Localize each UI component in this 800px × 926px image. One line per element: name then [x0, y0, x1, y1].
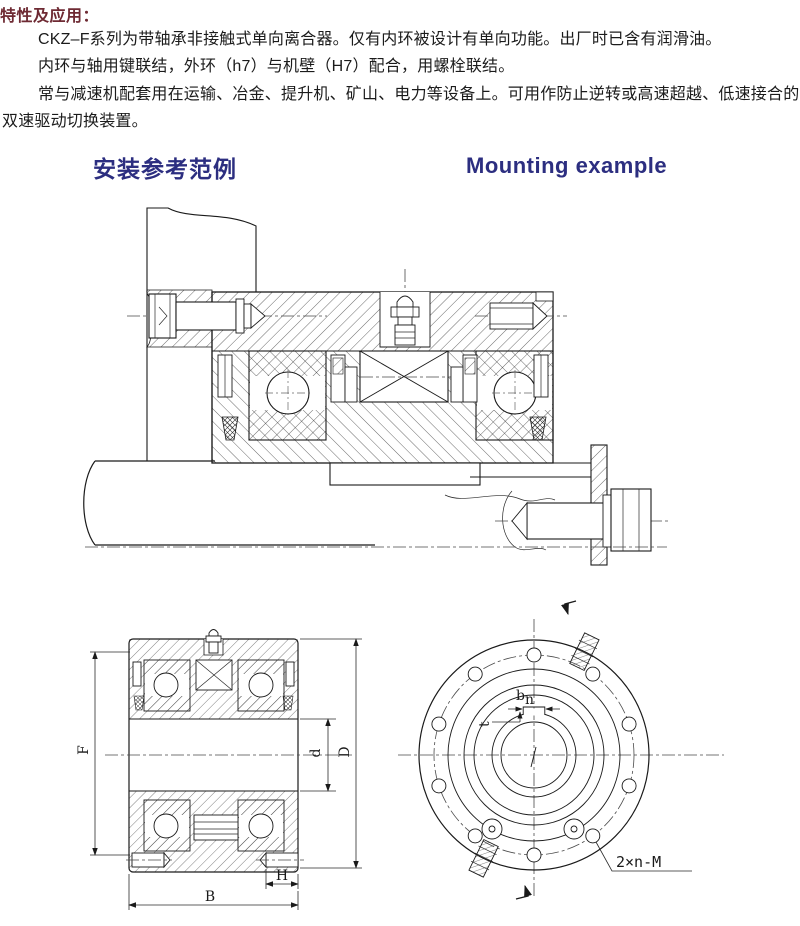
bolt-spec-label: 2×n-M: [616, 853, 661, 871]
mounting-example-drawing: [75, 195, 675, 575]
grease-fitting: [380, 269, 430, 347]
section-grease-fitting: [204, 630, 223, 656]
intro-line-2: 内环与轴用键联结，外环（h7）与机壁（H7）配合，用螺栓联结。: [0, 53, 800, 80]
shaft-key: [330, 463, 480, 485]
section-sleeve-bottom: [194, 815, 238, 840]
mounting-example-svg: [75, 195, 675, 575]
intro-block: 特性及应用： CKZ–F系列为带轴承非接触式单向离合器。仅有内环被设计有单向功能…: [0, 2, 800, 136]
radial-plug-bottom: [467, 839, 500, 878]
radial-plug-top: [568, 632, 601, 671]
section-mark-top: [565, 601, 576, 614]
section-bearing-bottom-right: [238, 800, 284, 851]
keyway-depth-label: t: [477, 721, 493, 727]
shaft: [84, 461, 555, 545]
section-bearing-top-right: [238, 660, 284, 711]
hex-bolt: [495, 489, 671, 551]
keyway-width-label: b: [516, 688, 525, 704]
front-view-drawing: b n t 2×n-M: [340, 585, 800, 926]
cross-section-svg: F d D H B: [60, 600, 380, 926]
keyway-width-dim: b n: [508, 688, 560, 709]
dim-label-F: F: [76, 745, 92, 755]
intro-line-1: CKZ–F系列为带轴承非接触式单向离合器。仅有内环被设计有单向功能。出厂时已含有…: [0, 26, 800, 53]
catalog-page: { "intro": { "title": "特性及应用：", "title_c…: [0, 0, 800, 926]
seal-slot-tr: [286, 662, 294, 686]
lug-left: [482, 819, 502, 839]
intro-line-3: 常与减速机配套用在运输、冶金、提升机、矿山、电力等设备上。可用作防止逆转或高速超…: [0, 81, 800, 108]
lug-right: [564, 819, 584, 839]
section-bearing-bottom-left: [144, 800, 190, 851]
dimension-F: F: [76, 652, 130, 855]
keyway-width-sub: n: [525, 692, 534, 708]
section-heading-en: Mounting example: [466, 153, 667, 179]
section-bearing-top-left: [144, 660, 190, 711]
intro-title: 特性及应用：: [0, 2, 800, 26]
dim-label-H: H: [276, 868, 288, 884]
dim-label-d: d: [308, 748, 324, 757]
keyway-depth-dim: t: [477, 712, 520, 727]
bearing-left: [249, 351, 326, 440]
seal-tl: [134, 696, 144, 710]
front-view-svg: b n t 2×n-M: [340, 585, 800, 926]
section-center-block-top: [196, 660, 232, 690]
mount-hole-left: [126, 853, 172, 867]
section-heading-zh: 安装参考范例: [93, 150, 237, 184]
dimensioned-cross-section: F d D H B: [60, 600, 380, 926]
seal-slot-tl: [133, 662, 141, 686]
dimension-B: B: [129, 874, 298, 910]
section-mark-bottom: [516, 886, 528, 899]
dim-label-B: B: [205, 889, 215, 905]
bolt-spec-note: 2×n-M: [596, 842, 692, 871]
intro-line-4: 双速驱动切换装置。: [0, 108, 800, 135]
seal-tr: [283, 696, 293, 710]
